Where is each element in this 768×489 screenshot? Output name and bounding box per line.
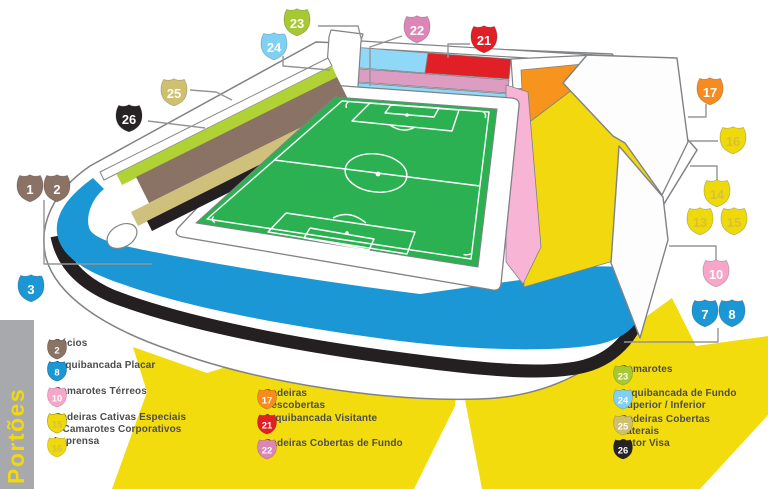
- gate-badge-13: 13: [687, 208, 713, 235]
- legend-item-gate-1-2: 12Sócios: [46, 338, 87, 350]
- gate-number: 8: [728, 307, 735, 322]
- gate-number: 25: [618, 421, 629, 432]
- legend-gate-badge-25: 25: [612, 414, 634, 436]
- gate-number: 3: [27, 282, 34, 297]
- gate-number: 2: [53, 182, 60, 197]
- stadium-sector-map: Portões: [0, 0, 768, 489]
- gate-badge-23: 23: [284, 9, 310, 36]
- legend-gate-badge-26: 26: [612, 438, 634, 460]
- gate-number: 17: [262, 395, 273, 406]
- leader-line: [669, 246, 716, 261]
- gate-number: 26: [122, 112, 136, 127]
- legend-gate-badge-17: 17: [256, 388, 278, 410]
- portoes-label: Portões: [3, 388, 29, 484]
- legend-label: Arquibancada Placar: [54, 360, 155, 372]
- gate-number: 21: [262, 420, 273, 431]
- legend-item-gate-16: 16Imprensa: [46, 436, 99, 448]
- gate-badge-22: 22: [404, 16, 430, 43]
- legend-item-gate-17: 17Cadeiras Descobertas: [256, 388, 325, 412]
- gate-number: 24: [267, 40, 282, 55]
- legend-item-gate-24: 24Arquibancada de Fundo Superior / Infer…: [612, 388, 737, 412]
- gate-badge-7: 7: [692, 300, 718, 327]
- gate-number: 24: [618, 395, 629, 406]
- gate-number: 8: [54, 367, 59, 378]
- legend-gate-badge-15: 15: [46, 412, 68, 434]
- legend-item-gate-10: 10Camarotes Térreos: [46, 386, 147, 398]
- legend-gate-badge-2: 2: [46, 338, 68, 360]
- gate-badge-25: 25: [161, 79, 187, 106]
- gate-number: 15: [52, 419, 63, 430]
- gate-number: 15: [727, 215, 741, 230]
- gate-number: 16: [52, 443, 63, 454]
- gate-number: 2: [54, 345, 59, 356]
- gate-badge-3: 3*: [18, 271, 45, 302]
- gate-badge-24: 24*: [261, 29, 288, 60]
- gate-badge-26: 26: [116, 105, 142, 132]
- legend-item-gate-3-7-8: 3*78Arquibancada Placar: [46, 360, 155, 372]
- gate-number: 1: [26, 182, 33, 197]
- gate-number: 16: [726, 134, 740, 149]
- pitch-penalty-spot-top: [405, 113, 409, 117]
- legend-item-gate-23: 23Camarotes: [612, 364, 673, 376]
- gate-number: 26: [618, 445, 629, 456]
- legend-item-gate-26: 26Setor Visa: [612, 438, 670, 450]
- gate-badge-10: 10: [703, 260, 729, 287]
- gate-badge-1: 1: [17, 175, 43, 202]
- legend-label: Cadeiras Cativas Especiais e Camarotes C…: [54, 412, 186, 436]
- gate-number: 10: [52, 393, 63, 404]
- gate-number: 23: [618, 371, 629, 382]
- gate-number: 14: [710, 187, 725, 202]
- gate-number: 22: [262, 445, 273, 456]
- legend-item-gate-25: 25Cadeiras Cobertas Laterais: [612, 414, 710, 438]
- legend-gate-badge-10: 10: [46, 386, 68, 408]
- gate-number: 13: [693, 215, 707, 230]
- pitch-penalty-spot-bottom: [345, 231, 349, 235]
- gate-number: 22: [410, 23, 424, 38]
- legend-gate-badge-8: 8: [46, 360, 68, 382]
- legend-label: Arquibancada Visitante: [264, 413, 377, 425]
- legend-gate-badge-21: 21: [256, 413, 278, 435]
- gate-number: 17: [703, 85, 717, 100]
- gate-badge-17: 17: [697, 78, 723, 105]
- gate-number: 10: [709, 267, 723, 282]
- legend-label: Arquibancada de Fundo Superior / Inferio…: [620, 388, 737, 412]
- legend-label: Cadeiras Cobertas de Fundo: [264, 438, 403, 450]
- gate-badge-8: 8: [719, 300, 745, 327]
- gate-number: 7: [701, 307, 708, 322]
- legend-gate-badge-23: 23: [612, 364, 634, 386]
- leader-line: [688, 104, 706, 117]
- leader-line: [690, 166, 717, 181]
- legend-item-gate-22: 22Cadeiras Cobertas de Fundo: [256, 438, 403, 450]
- gate-number: 25: [167, 86, 181, 101]
- gate-badge-15: 15: [721, 208, 747, 235]
- pitch-center-spot: [376, 172, 381, 177]
- gate-number: 21: [477, 33, 491, 48]
- legend-gate-badge-22: 22: [256, 438, 278, 460]
- legend-gate-badge-24: 24: [612, 388, 634, 410]
- legend-item-gate-21: 21Arquibancada Visitante: [256, 413, 377, 425]
- gate-badge-16: 16: [720, 127, 746, 154]
- gate-number: 23: [290, 16, 304, 31]
- gate-badge-14: 14: [704, 180, 730, 207]
- legend-item-gate-13-14-15: 131415Cadeiras Cativas Especiais e Camar…: [46, 412, 186, 436]
- legend-gate-badge-16: 16: [46, 436, 68, 458]
